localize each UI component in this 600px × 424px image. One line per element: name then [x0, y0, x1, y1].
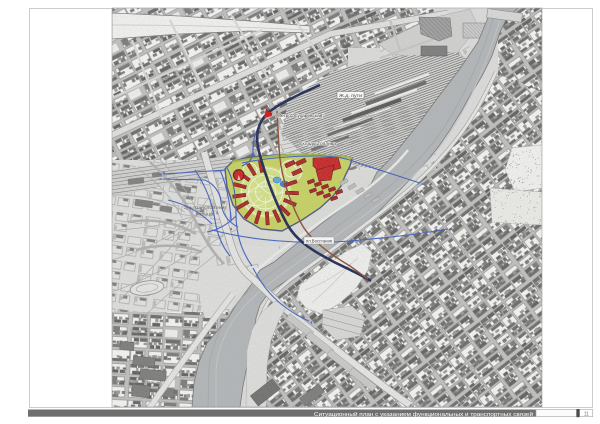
svg-text:11: 11 — [584, 412, 589, 418]
svg-text:Ситуационный план с указанием: Ситуационный план с указанием функционал… — [314, 411, 533, 418]
